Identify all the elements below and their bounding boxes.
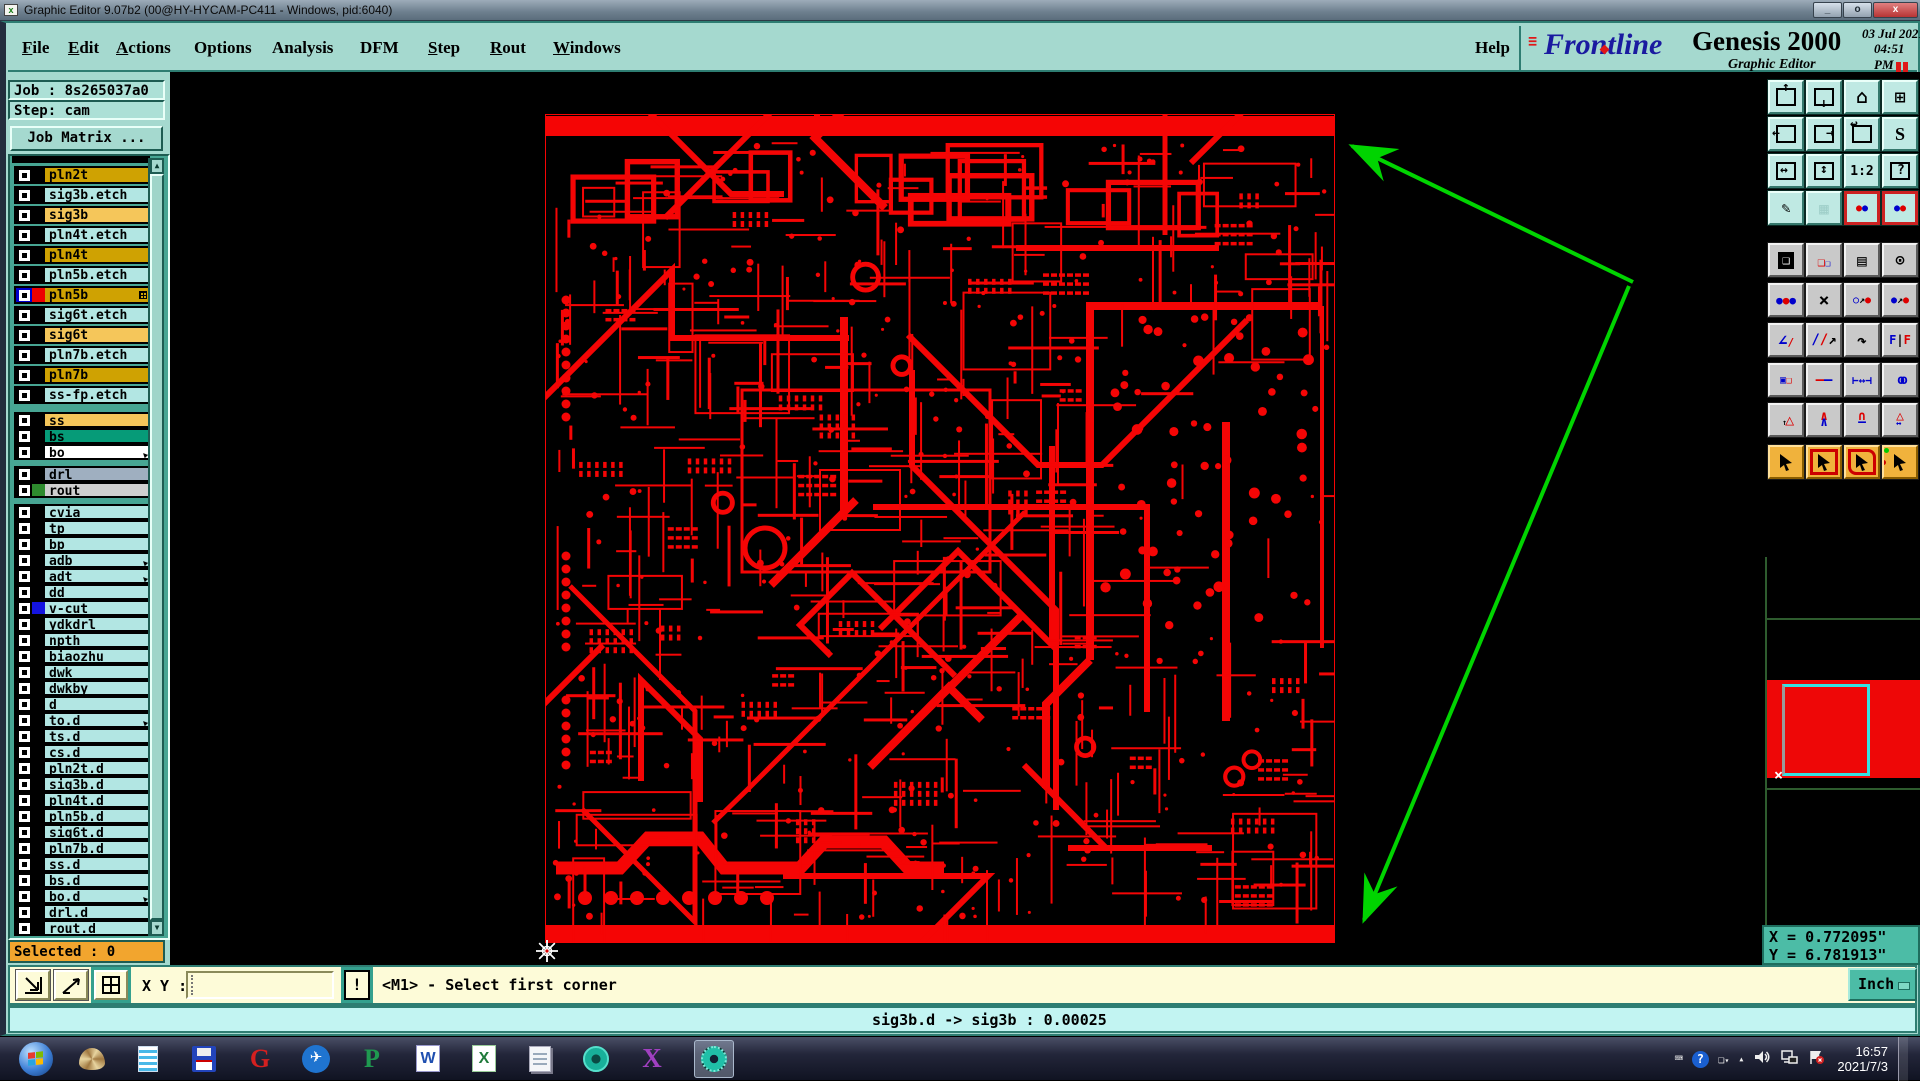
checkbox-icon	[19, 330, 30, 341]
zoom-out-button[interactable]: ↓	[1806, 80, 1842, 114]
setup-editor-button[interactable]: ✎	[1768, 191, 1804, 225]
layer-row-sig6t[interactable]: sig6t	[14, 326, 152, 344]
layer-checkbox-pln4t.d[interactable]	[16, 794, 32, 806]
layer-checkbox-pln7b.d[interactable]	[16, 842, 32, 854]
zoom-in-button[interactable]: ↑	[1768, 80, 1804, 114]
layer-row-pln7b.etch[interactable]: pln7b.etch	[14, 346, 152, 364]
clock-date: 2021/7/3	[1837, 1059, 1888, 1074]
layer-label: npth	[45, 634, 150, 646]
window-title-bar[interactable]: x Graphic Editor 9.07b2 (00@HY-HYCAM-PC4…	[0, 0, 1920, 21]
current-date: 03 Jul 2021	[1862, 26, 1920, 42]
stretch-button[interactable]: ——	[1806, 363, 1842, 397]
units-option-indicator	[1898, 982, 1910, 990]
layer-checkbox-pln5b[interactable]	[16, 288, 32, 302]
move-other-win-button[interactable]: ❑❑	[1806, 243, 1842, 277]
layer-checkbox-bs[interactable]	[16, 430, 32, 442]
layer-row-sig6t.d[interactable]: sig6t.d	[14, 824, 152, 840]
layer-checkbox-drl[interactable]	[16, 468, 32, 480]
rotate-button[interactable]: ↷	[1844, 323, 1880, 357]
layer-color-swatch[interactable]	[32, 794, 45, 806]
layer-label: pln7b.d	[45, 842, 150, 854]
select-pointer-button[interactable]	[1768, 445, 1804, 479]
menu-dfm[interactable]: DFM	[360, 38, 399, 58]
selected-count[interactable]: Selected : 0	[8, 940, 165, 963]
layer-color-swatch[interactable]	[32, 874, 45, 886]
checkbox-icon	[19, 683, 30, 694]
layer-checkbox-v-cut[interactable]	[16, 602, 32, 614]
layer-checkbox-sig3b[interactable]	[16, 208, 32, 222]
layer-color-swatch[interactable]	[32, 554, 45, 566]
layer-row-d[interactable]: d	[14, 696, 152, 712]
job-matrix-button[interactable]: Job Matrix ...	[10, 126, 163, 151]
layer-label: pln2t	[45, 168, 150, 182]
menu-edit[interactable]: Edit	[68, 38, 99, 58]
layer-label: pln5b	[45, 288, 150, 302]
menu-file[interactable]: File	[22, 38, 49, 58]
layer-checkbox-cs.d[interactable]	[16, 746, 32, 758]
layer-label: drl	[45, 468, 150, 480]
menu-brand-divider	[1519, 26, 1521, 70]
menu-windows[interactable]: Windows	[553, 38, 621, 58]
checkbox-icon	[19, 539, 30, 550]
layer-label: bs.d	[45, 874, 150, 886]
angle-snap-button[interactable]	[54, 970, 88, 1000]
zoom-out-2x-button[interactable]: ↔	[1768, 154, 1804, 188]
pan-left-button[interactable]: ←	[1768, 117, 1804, 151]
layer-checkbox-sig3b.d[interactable]	[16, 778, 32, 790]
action-center-icon[interactable]	[1807, 1049, 1825, 1069]
layer-row-pln2t.d[interactable]: pln2t.d	[14, 760, 152, 776]
arc-mode-button[interactable]: ∠/	[1768, 323, 1804, 357]
layer-checkbox-rout[interactable]	[16, 484, 32, 496]
layer-label: dwk	[45, 666, 150, 678]
layer-checkbox-sig3b.etch[interactable]	[16, 188, 32, 202]
layer-checkbox-ts.d[interactable]	[16, 730, 32, 742]
xy-coordinate-input[interactable]	[186, 971, 334, 999]
xy-entry-label: X Y :	[142, 977, 187, 995]
layer-label: pln7b.etch	[45, 348, 150, 362]
status-message-strip: sig3b.d -> sig3b : 0.00025	[8, 1005, 1917, 1033]
layer-color-swatch[interactable]	[32, 484, 45, 496]
layer-label: drl.d	[45, 906, 150, 918]
menu-actions[interactable]: Actions	[116, 38, 171, 58]
triangle-up-button[interactable]: △↑	[1768, 403, 1804, 437]
layer-color-swatch[interactable]	[32, 906, 45, 918]
pan-right-button[interactable]: →	[1806, 117, 1842, 151]
layer-row-adb[interactable]: adb▲	[14, 552, 152, 568]
checkbox-icon	[19, 523, 30, 534]
layer-row-adt[interactable]: adt▲	[14, 568, 152, 584]
checkbox-icon	[19, 447, 30, 458]
layer-color-swatch[interactable]	[32, 308, 45, 322]
checkbox-icon	[19, 555, 30, 566]
volume-icon[interactable]	[1753, 1049, 1771, 1069]
triangle-span-button[interactable]: △↔	[1882, 403, 1918, 437]
checkbox-icon	[19, 571, 30, 582]
checkbox-icon	[19, 230, 30, 241]
layer-checkbox-bp[interactable]	[16, 538, 32, 550]
taskbar-x-server-icon[interactable]: X	[632, 1040, 672, 1078]
layer-color-swatch[interactable]	[32, 730, 45, 742]
layer-color-swatch[interactable]	[32, 682, 45, 694]
move-to-layer-button[interactable]: ●↗●	[1882, 283, 1918, 317]
layer-row-pln5b.etch[interactable]: pln5b.etch	[14, 266, 152, 284]
layer-color-swatch[interactable]	[32, 698, 45, 710]
window-restore-tray-icon[interactable]: ❏▾	[1718, 1053, 1729, 1066]
checkbox-icon	[19, 310, 30, 321]
input-caret	[191, 975, 193, 995]
layer-checkbox-cvia[interactable]	[16, 506, 32, 518]
layer-color-swatch[interactable]	[32, 368, 45, 382]
layer-checkbox-pln5b.etch[interactable]	[16, 268, 32, 282]
frontline-stripes-icon: ≡	[1528, 38, 1544, 56]
menu-analysis[interactable]: Analysis	[272, 38, 333, 58]
width-measure-button[interactable]: ⊢↔⊣	[1844, 363, 1880, 397]
layer-color-swatch[interactable]	[32, 762, 45, 774]
zoom-in-2x-button[interactable]: ↕	[1806, 154, 1842, 188]
layer-row-rout.d[interactable]: rout.d	[14, 920, 152, 936]
command-bar: X Y : ! <M1> - Select first corner	[8, 965, 1917, 1005]
layer-color-swatch[interactable]	[32, 922, 45, 934]
layer-checkbox-pln7b.etch[interactable]	[16, 348, 32, 362]
minimize-button[interactable]: _	[1813, 2, 1842, 18]
triangle-chevron-button[interactable]: ∧∧	[1806, 403, 1842, 437]
layer-label: tp	[45, 522, 150, 534]
taskbar-bird-app-icon[interactable]: ✈	[296, 1040, 336, 1078]
select-feature-button[interactable]: ⊙	[1882, 243, 1918, 277]
layer-row-sig3b.etch[interactable]: sig3b.etch	[14, 186, 152, 204]
checkbox-icon	[19, 469, 30, 480]
scroll-down-icon[interactable]: ▼	[150, 920, 164, 936]
net-highlight-button[interactable]: ●●●	[1768, 283, 1804, 317]
layer-list-scrollbar[interactable]: ▲ ▼	[148, 158, 164, 936]
layer-color-swatch[interactable]	[32, 650, 45, 662]
app-window-icon: x	[4, 4, 18, 16]
layer-color-swatch[interactable]	[32, 268, 45, 282]
copy-to-layer-button[interactable]: ○↗●	[1844, 283, 1880, 317]
layer-color-swatch[interactable]	[32, 248, 45, 262]
menu-options[interactable]: Options	[194, 38, 252, 58]
zoom-corner-button[interactable]	[16, 970, 50, 1000]
layer-checkbox-adt[interactable]	[16, 570, 32, 582]
layer-row-pln4t[interactable]: pln4t	[14, 246, 152, 264]
layer-color-swatch[interactable]	[32, 506, 45, 518]
layer-label: ts.d	[45, 730, 150, 742]
layer-row-drl.d[interactable]: drl.d	[14, 904, 152, 920]
layer-checkbox-pln4t.etch[interactable]	[16, 228, 32, 242]
taskbar-start-icon[interactable]	[16, 1040, 56, 1078]
layer-color-swatch[interactable]	[32, 430, 45, 442]
taskbar-notepad-icon[interactable]	[520, 1040, 560, 1078]
checkbox-icon	[19, 875, 30, 886]
zoom-1-2-button[interactable]: 1:2	[1844, 154, 1880, 188]
right-toolbar: ↑↓⌂⊞←→↩S↔↕1:2?✎▦●●●●❑❑❑▤⊙●●●×○↗●●↗●∠///↗…	[1765, 72, 1920, 965]
layer-row-bs[interactable]: bs	[14, 428, 152, 444]
checkbox-icon	[19, 170, 30, 181]
checkbox-icon	[19, 923, 30, 934]
taskbar-p-app-icon[interactable]: P	[352, 1040, 392, 1078]
checkbox-icon	[19, 350, 30, 361]
layer-row-dwkby[interactable]: dwkby	[14, 680, 152, 696]
layer-row-to.d[interactable]: to.d▲	[14, 712, 152, 728]
layer-checkbox-ss.d[interactable]	[16, 858, 32, 870]
layer-row-v-cut[interactable]: v-cut	[14, 600, 152, 616]
checkbox-icon	[19, 651, 30, 662]
layer-row-bo.d[interactable]: bo.d▲	[14, 888, 152, 904]
checkbox-icon	[19, 587, 30, 598]
layer-color-swatch[interactable]	[32, 634, 45, 646]
select-polygon-button[interactable]	[1844, 445, 1880, 479]
layer-checkbox-adb[interactable]	[16, 554, 32, 566]
layer-checkbox-pln7b[interactable]	[16, 368, 32, 382]
layer-label: pln4t.d	[45, 794, 150, 806]
layer-checkbox-npth[interactable]	[16, 634, 32, 646]
layer-color-swatch[interactable]	[32, 188, 45, 202]
layer-color-swatch[interactable]	[32, 826, 45, 838]
layer-checkbox-drl.d[interactable]	[16, 906, 32, 918]
layer-color-swatch[interactable]	[32, 446, 45, 458]
checkbox-icon	[19, 843, 30, 854]
layer-row-pln7b.d[interactable]: pln7b.d	[14, 840, 152, 856]
show-desktop-button[interactable]	[1898, 1037, 1908, 1081]
checkbox-icon	[19, 795, 30, 806]
layer-label: ss.d	[45, 858, 150, 870]
keyboard-tray-icon[interactable]: ⌨	[1674, 1051, 1682, 1067]
taskbar-floppy-app-icon[interactable]	[184, 1040, 224, 1078]
layer-checkbox-d[interactable]	[16, 698, 32, 710]
layer-list: pln2tsig3b.etchsig3bpln4t.etchpln4tpln5b…	[8, 154, 170, 940]
checkbox-icon	[19, 891, 30, 902]
display-nets-1-button[interactable]: ●●	[1844, 191, 1880, 225]
layer-checkbox-ss[interactable]	[16, 414, 32, 426]
layer-label: cvia	[45, 506, 150, 518]
layer-color-swatch[interactable]	[32, 538, 45, 550]
layer-checkbox-sig6t.d[interactable]	[16, 826, 32, 838]
close-button[interactable]: x	[1873, 2, 1918, 18]
layer-checkbox-bo[interactable]	[16, 446, 32, 458]
layer-label: ss	[45, 414, 150, 426]
serpentine-view-button[interactable]: S	[1882, 117, 1918, 151]
help-query-button[interactable]: ?	[1882, 154, 1918, 188]
layer-row-rout[interactable]: rout	[14, 482, 152, 498]
layer-label: sig3b.d	[45, 778, 150, 790]
scroll-up-icon[interactable]: ▲	[150, 158, 164, 174]
layer-row-dd[interactable]: dd	[14, 584, 152, 600]
layer-checkbox-pln4t[interactable]	[16, 248, 32, 262]
layer-row-partial	[12, 156, 150, 163]
layer-label: cs.d	[45, 746, 150, 758]
grid-snap-button[interactable]	[94, 970, 128, 1000]
menu-help[interactable]: Help	[1475, 38, 1510, 58]
taskbar-word-icon[interactable]: W	[408, 1040, 448, 1078]
layer-checkbox-bo.d[interactable]	[16, 890, 32, 902]
layer-row-dwk[interactable]: dwk	[14, 664, 152, 680]
checkbox-icon	[19, 290, 30, 301]
layer-row-pln7b[interactable]: pln7b	[14, 366, 152, 384]
layer-label: adt▲	[45, 570, 150, 582]
layer-label: biaozhu	[45, 650, 150, 662]
taskbar-shell-app-icon[interactable]	[72, 1040, 112, 1078]
layer-checkbox-ydkdrl[interactable]	[16, 618, 32, 630]
previous-view-button[interactable]: ↩	[1844, 117, 1880, 151]
taskbar-excel-icon[interactable]: X	[464, 1040, 504, 1078]
select-rectangle-button[interactable]	[1806, 445, 1842, 479]
layer-row-cs.d[interactable]: cs.d	[14, 744, 152, 760]
layer-color-swatch[interactable]	[32, 746, 45, 758]
layer-checkbox-bs.d[interactable]	[16, 874, 32, 886]
layer-color-swatch[interactable]	[32, 228, 45, 242]
layer-row-bo[interactable]: bo▲	[14, 444, 152, 460]
layer-row-biaozhu[interactable]: biaozhu	[14, 648, 152, 664]
line-mode-button[interactable]: //↗	[1806, 323, 1842, 357]
work-layer-grid-icon	[139, 291, 147, 299]
layer-color-swatch[interactable]	[32, 208, 45, 222]
layer-row-pln4t.etch[interactable]: pln4t.etch	[14, 226, 152, 244]
hidden-icons-icon[interactable]: ▴	[1738, 1054, 1744, 1065]
layer-label: dwkby	[45, 682, 150, 694]
layer-row-tp[interactable]: tp	[14, 520, 152, 536]
layer-color-swatch[interactable]	[32, 328, 45, 342]
layer-color-swatch[interactable]	[32, 666, 45, 678]
layer-color-swatch[interactable]	[32, 858, 45, 870]
checkbox-icon	[19, 699, 30, 710]
layer-label: sig6t	[45, 328, 150, 342]
layer-checkbox-rout.d[interactable]	[16, 922, 32, 934]
layer-checkbox-dd[interactable]	[16, 586, 32, 598]
layer-label: pln5b.d	[45, 810, 150, 822]
taskbar-cam-tool-icon[interactable]	[576, 1040, 616, 1078]
checkbox-icon	[19, 370, 30, 381]
layer-checkbox-ss-fp.etch[interactable]	[16, 388, 32, 402]
layer-checkbox-to.d[interactable]	[16, 714, 32, 726]
home-view-button[interactable]: ⌂	[1844, 80, 1880, 114]
layer-checkbox-dwk[interactable]	[16, 666, 32, 678]
layer-row-sig6t.etch[interactable]: sig6t.etch	[14, 306, 152, 324]
layer-color-swatch[interactable]	[32, 468, 45, 480]
layer-color-swatch[interactable]	[32, 388, 45, 402]
layer-row-ydkdrl[interactable]: ydkdrl	[14, 616, 152, 632]
layer-row-pln4t.d[interactable]: pln4t.d	[14, 792, 152, 808]
prompt-alert-button[interactable]: !	[344, 970, 370, 1000]
layer-row-pln5b[interactable]: pln5b	[14, 286, 152, 304]
job-name-display: Job : 8s265037a0	[8, 80, 165, 100]
select-net-path-button[interactable]	[1882, 445, 1918, 479]
triangle-arch-button[interactable]: ∩—	[1844, 403, 1880, 437]
layer-row-bp[interactable]: bp	[14, 536, 152, 552]
layer-row-npth[interactable]: npth	[14, 632, 152, 648]
menu-step[interactable]: Step	[428, 38, 460, 58]
layer-checkbox-pln5b.d[interactable]	[16, 810, 32, 822]
layer-color-swatch[interactable]	[32, 522, 45, 534]
layer-label: pln4t.etch	[45, 228, 150, 242]
taskbar-list-app-icon[interactable]	[128, 1040, 168, 1078]
copy-other-win-button[interactable]: ❑	[1768, 243, 1804, 277]
layer-color-swatch[interactable]	[32, 602, 45, 614]
scrollbar-thumb[interactable]	[150, 174, 164, 920]
measure-button[interactable]: ▤	[1844, 243, 1880, 277]
layer-color-swatch[interactable]	[32, 348, 45, 362]
grid-toggle-button[interactable]: ▦	[1806, 191, 1842, 225]
graphic-canvas[interactable]	[170, 72, 1765, 965]
layer-row-bs.d[interactable]: bs.d	[14, 872, 152, 888]
product-name: Genesis 2000	[1692, 26, 1841, 57]
layer-color-swatch[interactable]	[32, 586, 45, 598]
layer-label: rout	[45, 484, 150, 496]
layer-row-ss[interactable]: ss	[14, 412, 152, 428]
checkbox-icon	[19, 270, 30, 281]
checkbox-icon	[19, 190, 30, 201]
network-icon[interactable]	[1780, 1049, 1798, 1069]
navigator-border-top	[1765, 618, 1920, 620]
checkbox-icon	[19, 811, 30, 822]
help-tray-icon[interactable]: ?	[1692, 1051, 1709, 1068]
resize-button[interactable]: ▣❑	[1768, 363, 1804, 397]
layer-checkbox-tp[interactable]	[16, 522, 32, 534]
layer-color-swatch[interactable]	[32, 618, 45, 630]
checkbox-icon	[19, 859, 30, 870]
taskbar-genesis-active-icon[interactable]	[694, 1040, 734, 1078]
layer-row-ss.d[interactable]: ss.d	[14, 856, 152, 872]
windows-taskbar: G✈PWXX ⌨ ? ❏▾ ▴ 16:57 2021/7/3	[0, 1036, 1920, 1080]
product-tagline: Graphic Editor	[1728, 57, 1816, 73]
layer-color-swatch[interactable]	[32, 778, 45, 790]
layer-checkbox-pln2t[interactable]	[16, 168, 32, 182]
maximize-button[interactable]: o	[1843, 2, 1872, 18]
units-selector[interactable]: Inch	[1848, 968, 1917, 1001]
layer-row-cvia[interactable]: cvia	[14, 504, 152, 520]
views-xy-button[interactable]: ⊞	[1882, 80, 1918, 114]
layer-color-swatch[interactable]	[32, 842, 45, 854]
display-nets-2-button[interactable]: ●●	[1882, 191, 1918, 225]
layer-row-ss-fp.etch[interactable]: ss-fp.etch	[14, 386, 152, 404]
layer-label: pln7b	[45, 368, 150, 382]
layer-color-swatch[interactable]	[32, 414, 45, 426]
layer-color-swatch[interactable]	[32, 890, 45, 902]
layer-checkbox-dwkby[interactable]	[16, 682, 32, 694]
menu-rout[interactable]: Rout	[490, 38, 526, 58]
checkbox-icon	[19, 210, 30, 221]
layer-label: d	[45, 698, 150, 710]
layer-row-ts.d[interactable]: ts.d	[14, 728, 152, 744]
layer-row-drl[interactable]: drl	[14, 466, 152, 482]
layer-checkbox-sig6t[interactable]	[16, 328, 32, 342]
checkbox-icon	[19, 907, 30, 918]
checkbox-icon	[19, 827, 30, 838]
layer-color-swatch[interactable]	[32, 168, 45, 182]
layer-color-swatch[interactable]	[32, 810, 45, 822]
layer-checkbox-sig6t.etch[interactable]	[16, 308, 32, 322]
layer-color-swatch[interactable]	[32, 570, 45, 582]
taskbar-clock[interactable]: 16:57 2021/7/3	[1837, 1044, 1888, 1074]
touching-button[interactable]: oo	[1882, 363, 1918, 397]
clock-time: 16:57	[1837, 1044, 1888, 1059]
checkbox-icon	[19, 715, 30, 726]
layer-row-pln5b.d[interactable]: pln5b.d	[14, 808, 152, 824]
checkbox-icon	[19, 619, 30, 630]
layer-checkbox-pln2t.d[interactable]	[16, 762, 32, 774]
layer-row-pln2t[interactable]: pln2t	[14, 166, 152, 184]
layer-color-swatch[interactable]	[32, 714, 45, 726]
layer-label: sig6t.d	[45, 826, 150, 838]
mirror-button[interactable]: F|F	[1882, 323, 1918, 357]
layer-row-sig3b[interactable]: sig3b	[14, 206, 152, 224]
layer-row-sig3b.d[interactable]: sig3b.d	[14, 776, 152, 792]
delete-button[interactable]: ×	[1806, 283, 1842, 317]
layer-color-swatch[interactable]	[32, 288, 45, 302]
navigator-viewport-box[interactable]	[1782, 684, 1870, 776]
taskbar-g-app-icon[interactable]: G	[240, 1040, 280, 1078]
layer-checkbox-biaozhu[interactable]	[16, 650, 32, 662]
